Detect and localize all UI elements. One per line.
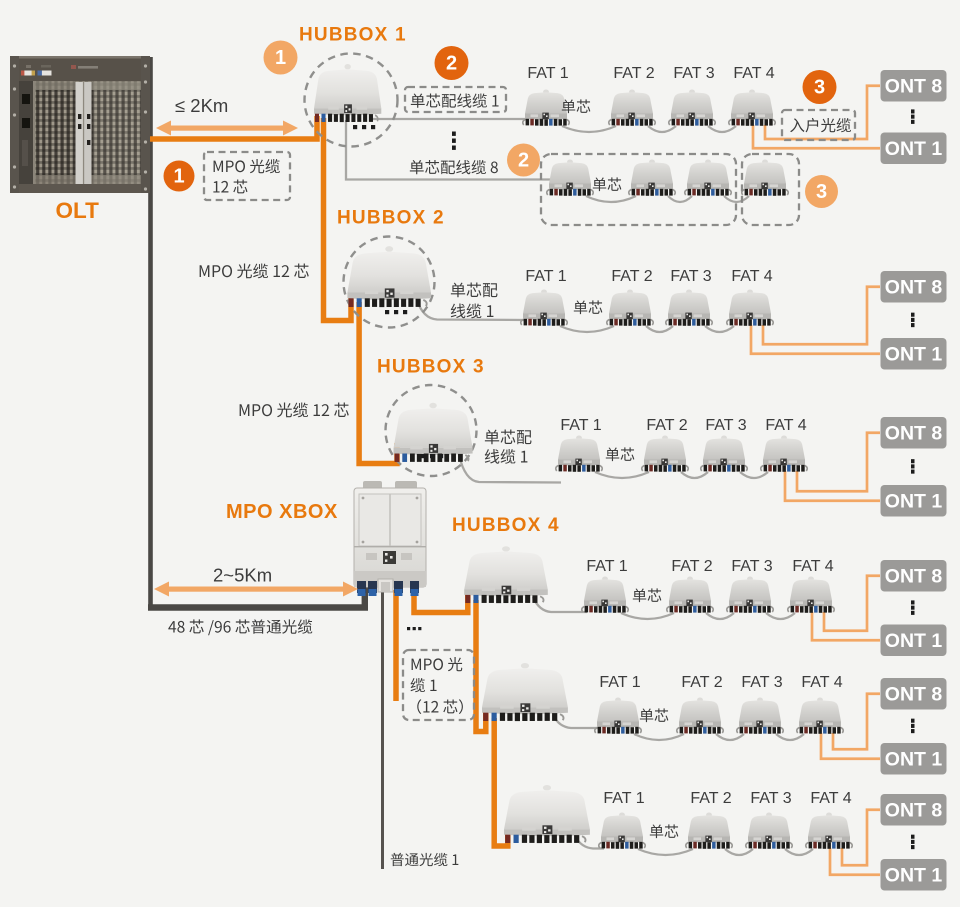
svg-text:3: 3	[814, 77, 825, 99]
svg-text:ONT 8: ONT 8	[885, 566, 943, 588]
svg-text:FAT 2: FAT 2	[611, 268, 652, 285]
svg-text:1: 1	[173, 166, 184, 188]
svg-text:FAT 2: FAT 2	[671, 558, 712, 575]
svg-text:FAT 1: FAT 1	[525, 268, 566, 285]
svg-text:ONT 1: ONT 1	[885, 491, 943, 513]
svg-text:FAT 3: FAT 3	[750, 790, 791, 807]
svg-text:1: 1	[275, 47, 286, 69]
svg-text:FAT 4: FAT 4	[731, 268, 772, 285]
svg-text:FAT 1: FAT 1	[560, 417, 601, 434]
svg-text:FAT 4: FAT 4	[765, 417, 806, 434]
svg-text:HUBBOX 3: HUBBOX 3	[377, 357, 485, 378]
svg-text:FAT 1: FAT 1	[603, 790, 644, 807]
svg-text:FAT 3: FAT 3	[673, 65, 714, 82]
svg-text:FAT 3: FAT 3	[741, 674, 782, 691]
svg-text:ONT 8: ONT 8	[885, 423, 943, 445]
svg-text:ONT 8: ONT 8	[885, 76, 943, 98]
svg-text:ONT 8: ONT 8	[885, 277, 943, 299]
svg-text:FAT 2: FAT 2	[681, 674, 722, 691]
svg-text:ONT 8: ONT 8	[885, 684, 943, 706]
svg-text:ONT 1: ONT 1	[885, 138, 943, 160]
svg-text:HUBBOX 4: HUBBOX 4	[452, 515, 560, 536]
svg-text:FAT 4: FAT 4	[733, 65, 774, 82]
svg-text:FAT 4: FAT 4	[792, 558, 833, 575]
svg-text:FAT 2: FAT 2	[646, 417, 687, 434]
svg-text:MPO XBOX: MPO XBOX	[226, 501, 338, 523]
svg-text:ONT 1: ONT 1	[885, 344, 943, 366]
svg-text:ONT 8: ONT 8	[885, 800, 943, 822]
svg-text:ONT 1: ONT 1	[885, 749, 943, 771]
svg-text:FAT 1: FAT 1	[527, 65, 568, 82]
svg-text:FAT 1: FAT 1	[599, 674, 640, 691]
svg-text:ONT 1: ONT 1	[885, 630, 943, 652]
svg-text:OLT: OLT	[56, 198, 100, 223]
svg-text:3: 3	[816, 181, 827, 203]
svg-text:2: 2	[518, 150, 529, 172]
svg-text:2~5Km: 2~5Km	[213, 565, 272, 586]
svg-text:HUBBOX 2: HUBBOX 2	[337, 208, 445, 229]
svg-text:FAT 2: FAT 2	[690, 790, 731, 807]
svg-text:FAT 3: FAT 3	[705, 417, 746, 434]
svg-text:ONT 1: ONT 1	[885, 865, 943, 887]
svg-text:FAT 3: FAT 3	[670, 268, 711, 285]
svg-text:FAT 1: FAT 1	[586, 558, 627, 575]
svg-text:≤ 2Km: ≤ 2Km	[175, 95, 228, 116]
svg-text:FAT 3: FAT 3	[731, 558, 772, 575]
svg-text:2: 2	[446, 53, 457, 75]
svg-text:FAT 4: FAT 4	[801, 674, 842, 691]
svg-text:FAT 4: FAT 4	[810, 790, 851, 807]
svg-text:HUBBOX 1: HUBBOX 1	[299, 25, 407, 46]
svg-text:FAT 2: FAT 2	[613, 65, 654, 82]
